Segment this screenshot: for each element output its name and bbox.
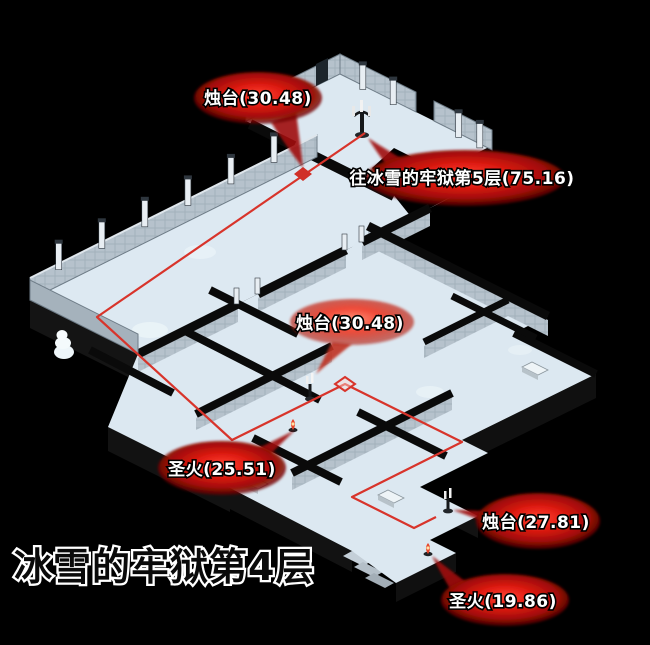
poi-label-text: 烛台(27.81) (482, 512, 590, 533)
dungeon-map: 烛台(30.48) 往冰雪的牢狱第5层(75.16) 烛台(30.48) 圣火(… (0, 0, 650, 645)
poi-label-text: 圣火(19.86) (449, 592, 557, 612)
poi-label-text: 烛台(30.48) (204, 88, 312, 109)
poi-label-text: 往冰雪的牢狱第5层(75.16) (349, 168, 574, 189)
poi-label-text: 圣火(25.51) (168, 460, 276, 480)
poi-label-text: 烛台(30.48) (296, 313, 404, 334)
game-map-screen: 烛台(30.48) 往冰雪的牢狱第5层(75.16) 烛台(30.48) 圣火(… (0, 0, 650, 645)
map-title: 冰雪的牢狱第4层 (14, 545, 314, 589)
